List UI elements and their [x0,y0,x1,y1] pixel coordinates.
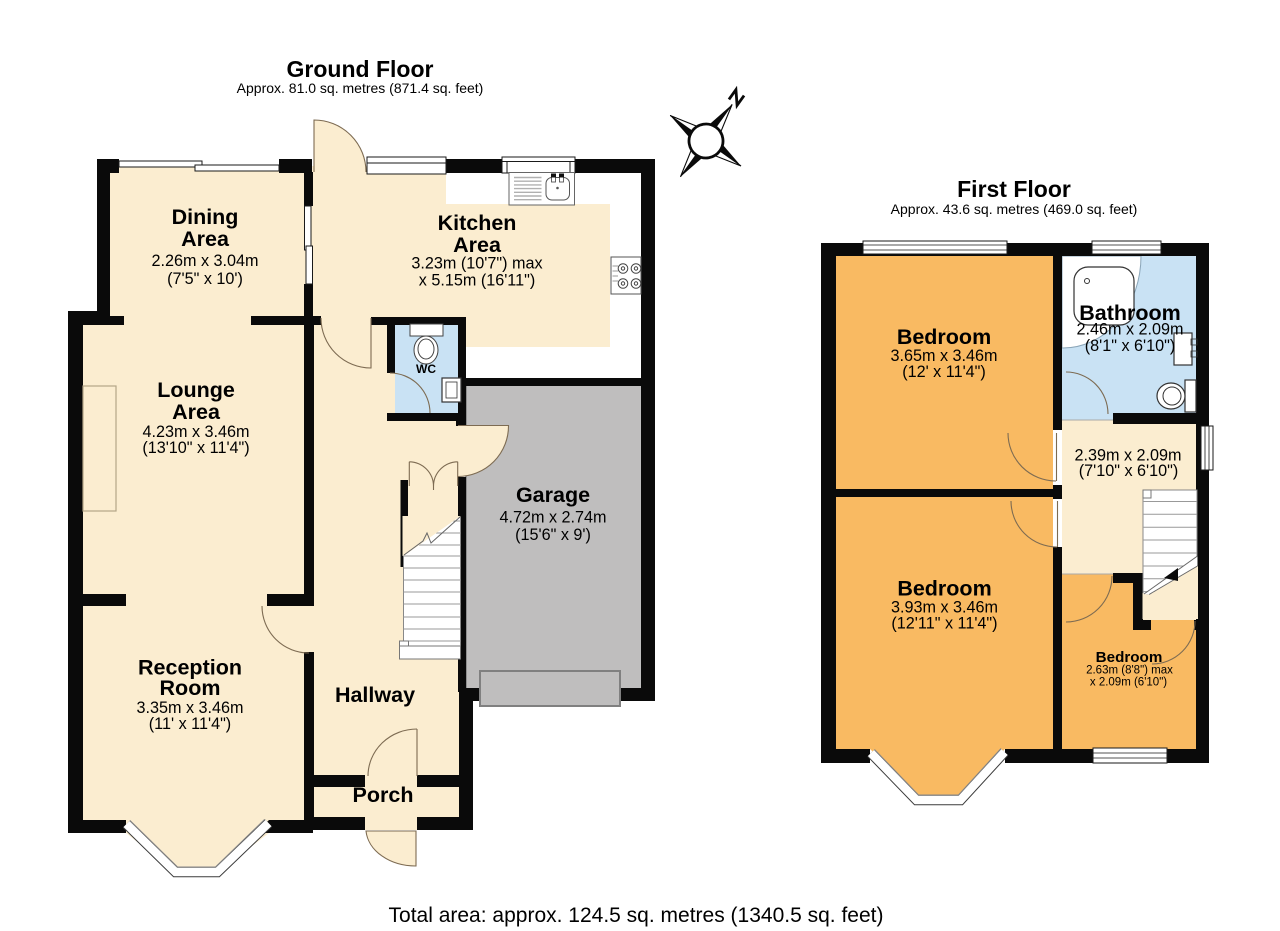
svg-text:x 5.15m (16'11"): x 5.15m (16'11") [419,272,536,290]
svg-text:Garage: Garage [516,483,590,507]
svg-text:(12' x 11'4"): (12' x 11'4") [902,363,986,381]
svg-text:Kitchen: Kitchen [438,211,517,235]
svg-text:(11' x 11'4"): (11' x 11'4") [149,715,231,733]
svg-text:Bedroom: Bedroom [1096,649,1163,666]
svg-text:First Floor: First Floor [957,176,1071,202]
svg-text:(7'5" x 10'): (7'5" x 10') [167,270,243,288]
svg-text:Ground Floor: Ground Floor [287,56,434,82]
svg-text:Area: Area [453,233,502,257]
svg-text:2.26m x 3.04m: 2.26m x 3.04m [151,252,258,270]
svg-text:Dining: Dining [172,205,239,229]
svg-text:Bedroom: Bedroom [897,577,991,601]
svg-text:2.46m x 2.09m: 2.46m x 2.09m [1076,321,1183,339]
svg-text:x 2.09m (6'10"): x 2.09m (6'10") [1090,677,1167,689]
svg-text:(13'10" x 11'4"): (13'10" x 11'4") [142,439,249,457]
svg-text:(8'1" x 6'10"): (8'1" x 6'10") [1085,337,1176,355]
svg-text:Lounge: Lounge [157,378,235,402]
svg-text:3.23m (10'7") max: 3.23m (10'7") max [411,255,542,273]
svg-text:2.63m (8'8") max: 2.63m (8'8") max [1086,665,1173,677]
svg-text:Hallway: Hallway [335,683,415,707]
svg-text:Porch: Porch [353,783,414,807]
svg-text:(12'11" x 11'4"): (12'11" x 11'4") [891,615,997,633]
svg-text:WC: WC [416,362,436,376]
svg-text:(7'10" x 6'10"): (7'10" x 6'10") [1079,462,1179,480]
svg-text:Area: Area [181,227,230,251]
svg-text:Room: Room [160,676,221,700]
svg-text:4.72m x 2.74m: 4.72m x 2.74m [499,509,606,527]
svg-text:(15'6" x 9'): (15'6" x 9') [515,526,591,544]
svg-text:Approx. 81.0 sq. metres (871.4: Approx. 81.0 sq. metres (871.4 sq. feet) [237,80,484,96]
svg-text:Area: Area [172,400,221,424]
svg-text:Approx. 43.6 sq. metres (469.0: Approx. 43.6 sq. metres (469.0 sq. feet) [891,201,1138,217]
svg-text:Total area: approx. 124.5 sq.: Total area: approx. 124.5 sq. metres (13… [389,904,884,927]
svg-text:Bedroom: Bedroom [897,325,991,349]
